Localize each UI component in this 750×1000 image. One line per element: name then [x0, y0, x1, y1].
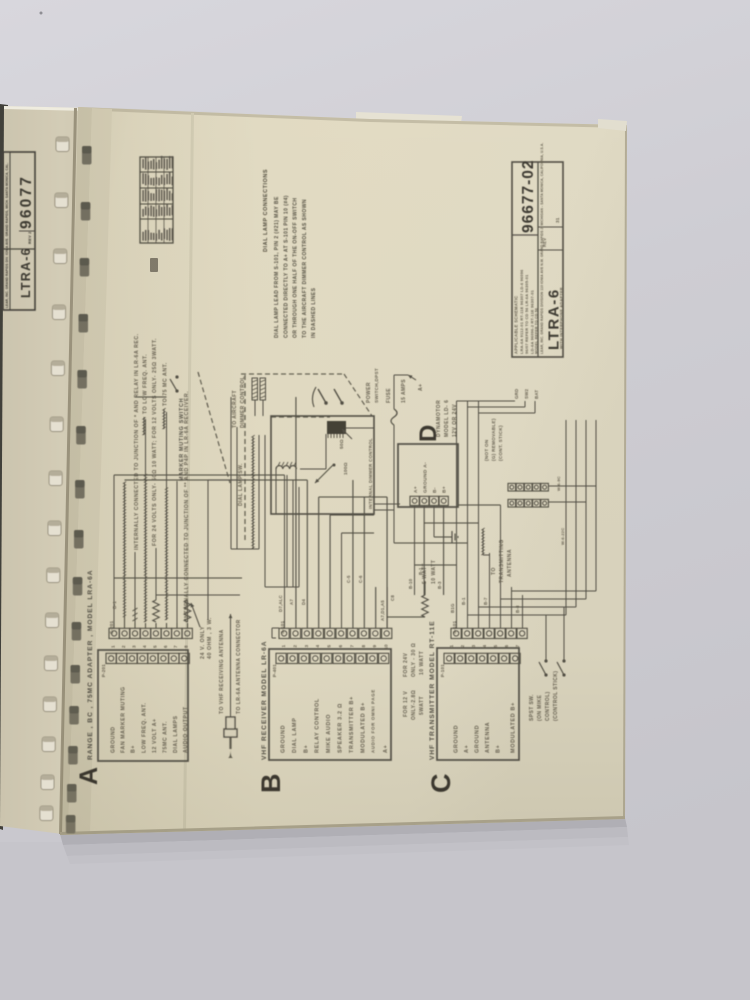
svg-text:D4: D4	[301, 599, 306, 605]
svg-text:VHF TRANSMITTER MODEL RT-11E: VHF TRANSMITTER MODEL RT-11E	[429, 620, 436, 760]
svg-text:GROUND: GROUND	[111, 726, 117, 753]
svg-text:LEAR, INC. GRAND RAPIDS DIV. I: LEAR, INC. GRAND RAPIDS DIV. IONIA AVE. …	[5, 163, 9, 308]
svg-text:A7: A7	[289, 599, 294, 605]
svg-text:FUSE: FUSE	[386, 388, 392, 403]
svg-text:100Ω: 100Ω	[343, 462, 349, 475]
svg-text:75MC ANT.: 75MC ANT.	[163, 721, 169, 753]
svg-text:TRANSMITTER B+: TRANSMITTER B+	[349, 696, 355, 753]
svg-text:12 VOLT A+: 12 VOLT A+	[152, 718, 158, 753]
svg-text:LEAR, INC. GRAND RAPIDS DIVISI: LEAR, INC. GRAND RAPIDS DIVISION 110 ION…	[540, 143, 544, 354]
svg-text:(CONTROL STICK): (CONTROL STICK)	[553, 671, 559, 721]
svg-text:B1G: B1G	[450, 603, 455, 613]
svg-text:ANTENNA: ANTENNA	[485, 722, 491, 753]
svg-text:3: 3	[131, 645, 136, 648]
svg-text:4: 4	[142, 645, 147, 648]
svg-text:ONLY - 30 Ω: ONLY - 30 Ω	[411, 643, 417, 677]
svg-text:A+: A+	[418, 384, 424, 391]
svg-text:B+: B+	[442, 486, 448, 493]
svg-text:TRANSMITTING: TRANSMITTING	[499, 539, 505, 583]
svg-text:3: 3	[304, 645, 309, 648]
svg-text:CONTROL): CONTROL)	[545, 691, 551, 721]
svg-text:50Ω: 50Ω	[339, 439, 345, 449]
svg-text:MARKER MUTING SWITCH: MARKER MUTING SWITCH	[179, 398, 185, 481]
svg-text:6: 6	[338, 645, 343, 648]
svg-text:5: 5	[327, 645, 332, 648]
svg-text:2: 2	[460, 645, 465, 648]
svg-text:2: 2	[292, 645, 297, 648]
svg-text:10: 10	[384, 644, 389, 650]
svg-text:B-1: B-1	[418, 567, 423, 575]
svg-text:5: 5	[493, 645, 498, 648]
svg-text:6: 6	[163, 645, 168, 648]
svg-text:P-401: P-401	[272, 664, 277, 678]
svg-text:B: B	[256, 774, 286, 794]
svg-text:GROUND: GROUND	[454, 725, 460, 753]
svg-text:TO THE AIRCRAFT DIMMER CONTR: TO THE AIRCRAFT DIMMER CONTROL AS SHOWN	[302, 199, 308, 338]
svg-text:LOW FREQ. ANT.: LOW FREQ. ANT.	[142, 702, 148, 753]
svg-text:C: C	[426, 774, 456, 794]
svg-text:GROUND A-: GROUND A-	[423, 462, 429, 493]
svg-text:TO 75 MC ANT.: TO 75 MC ANT.	[163, 362, 169, 406]
svg-text:B+: B+	[303, 745, 309, 753]
svg-text:W-6-9C: W-6-9C	[556, 476, 561, 491]
svg-text:(CONT. STICK): (CONT. STICK)	[498, 425, 503, 461]
svg-text:15 AMPS: 15 AMPS	[401, 379, 407, 403]
svg-text:9: 9	[372, 645, 377, 648]
svg-text:TO AIRCRAFT: TO AIRCRAFT	[232, 390, 238, 428]
svg-text:P-201: P-201	[101, 664, 106, 678]
svg-text:INTERNAL DIMMER CONTROL: INTERNAL DIMMER CONTROL	[368, 438, 373, 509]
svg-text:MODEL REFER TO CD 56: MODEL REFER TO CD 56	[534, 308, 538, 354]
svg-text:B-: B-	[432, 487, 438, 493]
svg-text:MODULATED B+: MODULATED B+	[360, 702, 366, 753]
svg-text:96677-02: 96677-02	[520, 159, 537, 233]
svg-text:FAN MARKER MUTING: FAN MARKER MUTING	[121, 686, 127, 753]
svg-text:SPEAKER 3.2 Ω: SPEAKER 3.2 Ω	[338, 703, 344, 753]
svg-text:C-5: C-5	[346, 575, 351, 583]
svg-text:B+: B+	[131, 745, 137, 753]
svg-text:CONNECTED DIRECTLY TO A+ AT S-: CONNECTED DIRECTLY TO A+ AT S-101 PIN 10…	[283, 195, 289, 338]
svg-text:5WATT: 5WATT	[419, 696, 425, 715]
svg-text:DIAL LAMP CONNECTIONS: DIAL LAMP CONNECTIONS	[263, 169, 269, 252]
svg-text:SPST SW.: SPST SW.	[529, 694, 535, 721]
svg-text:7: 7	[515, 645, 520, 648]
svg-text:GROUND: GROUND	[475, 725, 481, 753]
svg-text:8: 8	[361, 645, 366, 648]
svg-text:A7,D1,A5: A7,D1,A5	[380, 600, 385, 621]
svg-text:SWITCH,DPST: SWITCH,DPST	[374, 368, 379, 403]
svg-text:BAT: BAT	[534, 390, 539, 399]
svg-text:GRD: GRD	[514, 389, 519, 399]
svg-text:MIKE AUDIO: MIKE AUDIO	[326, 714, 332, 753]
svg-text:FOR 12 V: FOR 12 V	[403, 691, 409, 717]
svg-text:REV 2: REV 2	[27, 231, 32, 244]
svg-text:FOR 24 VOLTS ONLY- 50Ω 10 WAT: FOR 24 VOLTS ONLY- 50Ω 10 WATT; FOR 12 V…	[152, 338, 158, 546]
svg-text:AUDIO FOR OMNI PAGE: AUDIO FOR OMNI PAGE	[371, 689, 376, 753]
svg-text:(G) REMOVABLE): (G) REMOVABLE)	[491, 418, 496, 461]
svg-text:DIAL LAMPS: DIAL LAMPS	[173, 715, 179, 753]
svg-text:TO LOW FREQ. ANT.: TO LOW FREQ. ANT.	[143, 354, 149, 414]
svg-text:DIMMER CONTROL: DIMMER CONTROL	[240, 376, 246, 428]
svg-text:TO VHF RECEIVING ANTENNA: TO VHF RECEIVING ANTENNA	[219, 629, 225, 714]
svg-text:RANGE , BC , 75MC ADAPTER , MO: RANGE , BC , 75MC ADAPTER , MODEL LRA-6A	[87, 569, 94, 760]
svg-text:B+: B+	[496, 745, 502, 753]
svg-text:DIAL LAMP LEAD FROM S-101, PIN: DIAL LAMP LEAD FROM S-101, PIN 2 (#21) M…	[274, 196, 280, 338]
svg-text:TO: TO	[491, 567, 497, 575]
svg-text:C8: C8	[390, 595, 395, 601]
svg-text:(ON MIKE: (ON MIKE	[537, 694, 543, 721]
svg-text:B-8: B-8	[515, 605, 520, 613]
svg-text:10 WATT: 10 WATT	[419, 651, 425, 675]
svg-text:WITH INTERPHONE ADAPTER: WITH INTERPHONE ADAPTER	[560, 287, 564, 349]
svg-text:GROUND: GROUND	[281, 725, 287, 753]
svg-text:AUDIO OUTPUT: AUDIO OUTPUT	[183, 706, 189, 753]
svg-text:A: A	[75, 767, 103, 785]
svg-text:B-1: B-1	[112, 601, 117, 609]
svg-text:REV: REV	[542, 238, 547, 247]
svg-text:4: 4	[482, 645, 487, 648]
svg-text:A+: A+	[464, 745, 470, 753]
svg-text:MODULATED B+: MODULATED B+	[511, 702, 517, 753]
svg-text:MODEL LD- 6: MODEL LD- 6	[444, 400, 450, 437]
svg-text:P-101: P-101	[440, 664, 445, 678]
svg-text:IN DASHED LINES: IN DASHED LINES	[311, 287, 317, 338]
svg-text:B-1: B-1	[461, 597, 466, 605]
svg-text:A+: A+	[383, 745, 389, 753]
svg-text:(NOT ON: (NOT ON	[484, 439, 489, 461]
svg-text:5: 5	[152, 645, 157, 648]
svg-text:3: 3	[471, 645, 476, 648]
svg-text:31: 31	[555, 217, 560, 223]
svg-text:ANTENNA: ANTENNA	[507, 549, 513, 577]
svg-text:B-3: B-3	[437, 581, 442, 589]
svg-text:24 V. ONLY: 24 V. ONLY	[200, 626, 206, 659]
svg-text:FOR 24V: FOR 24V	[403, 652, 409, 677]
svg-text:12V OR 24V: 12V OR 24V	[452, 404, 458, 437]
svg-text:96077: 96077	[18, 175, 35, 229]
svg-text:VHF RECEIVER MODEL LR-6A: VHF RECEIVER MODEL LR-6A	[261, 641, 268, 761]
svg-text:8: 8	[184, 645, 189, 648]
svg-text:INTERNALLY CONNECTED TO JUNCTI: INTERNALLY CONNECTED TO JUNCTION OF * AN…	[134, 333, 140, 550]
svg-text:LTRA-6: LTRA-6	[19, 247, 33, 298]
svg-text:POWER: POWER	[366, 382, 372, 403]
svg-text:TO LR-6A ANTENNA CONNECTOR: TO LR-6A ANTENNA CONNECTOR	[236, 619, 242, 714]
svg-text:SW2: SW2	[524, 389, 529, 399]
svg-text:W-6-22C: W-6-22C	[560, 528, 565, 545]
svg-text:RELAY CONTROL: RELAY CONTROL	[315, 698, 321, 753]
svg-text:A+: A+	[413, 486, 419, 493]
svg-text:7: 7	[173, 645, 178, 648]
svg-text:1: 1	[111, 645, 116, 648]
svg-text:2: 2	[121, 645, 126, 648]
svg-text:DIAL LAMP: DIAL LAMP	[292, 717, 298, 753]
svg-text:7: 7	[349, 645, 354, 648]
svg-text:D7,ALC: D7,ALC	[278, 594, 283, 612]
svg-text:ONLY-2.8Ω: ONLY-2.8Ω	[411, 690, 417, 720]
svg-text:10 WATT: 10 WATT	[431, 560, 437, 584]
svg-text:APPLICABLE SCHEMATIC: APPLICABLE SCHEMATIC	[514, 296, 519, 355]
svg-text:1: 1	[449, 645, 454, 648]
svg-text:4: 4	[315, 645, 320, 648]
svg-text:6: 6	[504, 645, 509, 648]
svg-text:C-6: C-6	[358, 575, 363, 583]
svg-text:DIAL LAMP SW.: DIAL LAMP SW.	[238, 463, 244, 506]
svg-text:B-10: B-10	[408, 578, 413, 589]
svg-text:OR THROUGH ONE HALF OF THE ON-: OR THROUGH ONE HALF OF THE ON-OFF SWITCH	[293, 198, 299, 339]
svg-text:B-7: B-7	[483, 597, 488, 605]
svg-text:1: 1	[281, 645, 286, 648]
svg-text:DYNAMOTOR: DYNAMOTOR	[436, 400, 442, 437]
svg-text:40 OHM , 3 W.: 40 OHM , 3 W.	[207, 617, 213, 659]
